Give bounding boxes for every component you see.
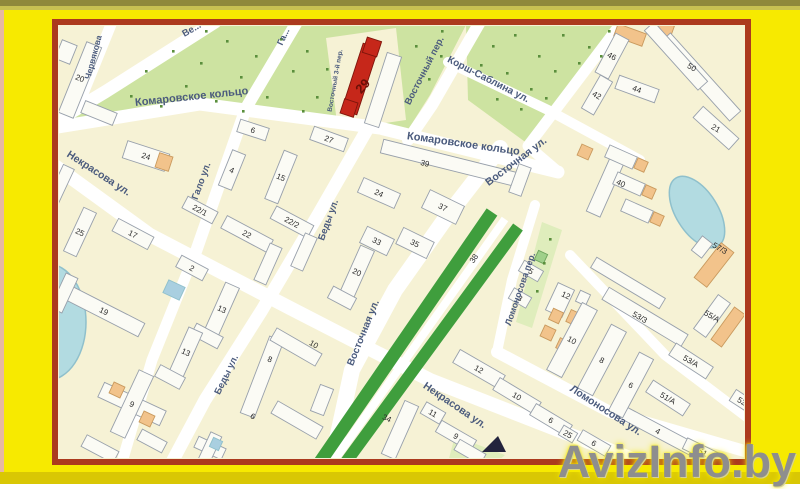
park-dot bbox=[608, 30, 611, 33]
top-band bbox=[0, 0, 800, 6]
park-dot bbox=[492, 45, 495, 48]
park-dot bbox=[554, 70, 557, 73]
park-dot bbox=[545, 97, 548, 100]
park-dot bbox=[514, 34, 517, 37]
park-dot bbox=[600, 55, 603, 58]
park-dot bbox=[240, 76, 243, 79]
park-dot bbox=[415, 45, 418, 48]
park-dot bbox=[562, 34, 565, 37]
park-dot bbox=[172, 50, 175, 53]
city-map: 20242517219131392062741522/12222/2243937… bbox=[0, 0, 800, 484]
park-dot bbox=[145, 70, 148, 73]
park-dot bbox=[480, 64, 483, 67]
park-dot bbox=[130, 95, 133, 98]
park-dot bbox=[506, 72, 509, 75]
park-dot bbox=[242, 110, 245, 113]
park-dot bbox=[292, 70, 295, 73]
park-dot bbox=[578, 62, 581, 65]
park-dot bbox=[306, 50, 309, 53]
park-dot bbox=[326, 68, 329, 71]
park-dot bbox=[428, 78, 431, 81]
park-dot bbox=[530, 88, 533, 91]
park-dot bbox=[205, 30, 208, 33]
listing-image: 20242517219131392062741522/12222/2243937… bbox=[0, 0, 800, 484]
park-dot bbox=[496, 98, 499, 101]
park-dot bbox=[266, 96, 269, 99]
park-dot bbox=[185, 85, 188, 88]
park-dot bbox=[441, 30, 444, 33]
park-dot bbox=[543, 262, 546, 265]
park-dot bbox=[588, 46, 591, 49]
park-dot bbox=[440, 55, 443, 58]
top-band-inner bbox=[0, 6, 800, 10]
park-dot bbox=[520, 108, 523, 111]
left-edge-strip bbox=[0, 10, 4, 472]
park-dot bbox=[200, 62, 203, 65]
park-dot bbox=[316, 96, 319, 99]
park-dot bbox=[226, 40, 229, 43]
park-dot bbox=[538, 55, 541, 58]
park-dot bbox=[302, 110, 305, 113]
park-dot bbox=[536, 290, 539, 293]
bottom-band bbox=[0, 472, 800, 484]
park-dot bbox=[549, 238, 552, 241]
park-dot bbox=[255, 55, 258, 58]
